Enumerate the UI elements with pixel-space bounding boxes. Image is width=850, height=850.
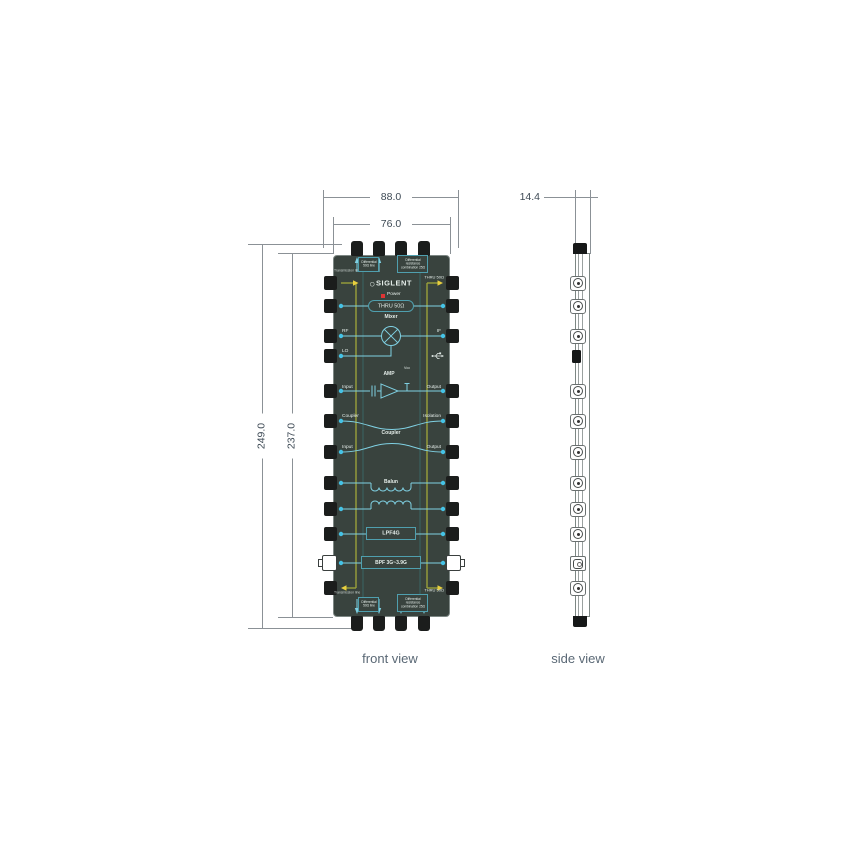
amp-output-label: Output [408,384,441,395]
dim-height-inner: 237.0 [286,414,300,459]
coupler-port-label: Coupler [342,413,370,424]
bpf-box: BPF 3G~3.9G [361,556,421,569]
side-sma-connector [570,502,586,517]
diff-res-box-top: Differential resistance combination 25Ω [397,255,428,273]
port-dots-left [339,304,343,565]
dim-line-14 [544,197,598,198]
balun-title: Balun [371,479,411,491]
front-view-caption: front view [338,651,442,667]
diff-line-box-top: Differential 50Ω line [358,257,379,272]
side-sma-connector [570,276,586,291]
dim-thickness: 14.4 [506,191,540,204]
mechanical-drawing-canvas: 88.0 76.0 249.0 237.0 [0,0,850,850]
coupler-input-label: Input [342,444,366,455]
port-dots-right [441,304,445,565]
diff-res-box-bottom: Differential resistance combination 25Ω [397,594,428,612]
lo-port-label: LO [342,348,362,359]
side-sma-connector [570,299,586,314]
power-led [381,294,385,298]
side-square-connector [570,556,586,571]
isolation-port-label: Isolation [405,413,441,424]
lpf-box: LPF4G [366,527,416,540]
thru50-oval: THRU 50Ω [368,300,414,312]
amp-input-label: Input [342,384,366,395]
side-usb-connector [572,350,581,363]
side-sma-connector [570,414,586,429]
vcc-label: Vcc [398,366,416,374]
side-sma-connector [570,329,586,344]
coupler-output-label: Output [408,444,441,455]
usb-icon [432,352,445,358]
side-sma-connector [570,581,586,596]
side-view-caption: side view [526,651,630,667]
ext-line-side-right [590,190,591,254]
dim-height-outer: 249.0 [256,414,270,459]
side-sma-connector [570,476,586,491]
brand-text: SIGLENT [376,279,412,288]
diff-line-box-bottom: Differential 50Ω line [358,597,379,612]
siglent-logo-icon [370,282,375,287]
coupler-title: Coupler [366,430,416,442]
rf-port-label: RF [342,328,362,339]
if-port-label: IF [412,328,441,339]
dim-width-inner: 76.0 [370,218,412,231]
side-top-connector [573,243,587,254]
side-bottom-connector [573,616,587,627]
side-sma-connector [570,384,586,399]
corner-label-top-right: THRU 50Ω [413,275,444,284]
side-sma-connector [570,527,586,542]
dim-width-outer: 88.0 [370,191,412,204]
mixer-title: Mixer [371,314,411,326]
side-sma-connector [570,445,586,460]
